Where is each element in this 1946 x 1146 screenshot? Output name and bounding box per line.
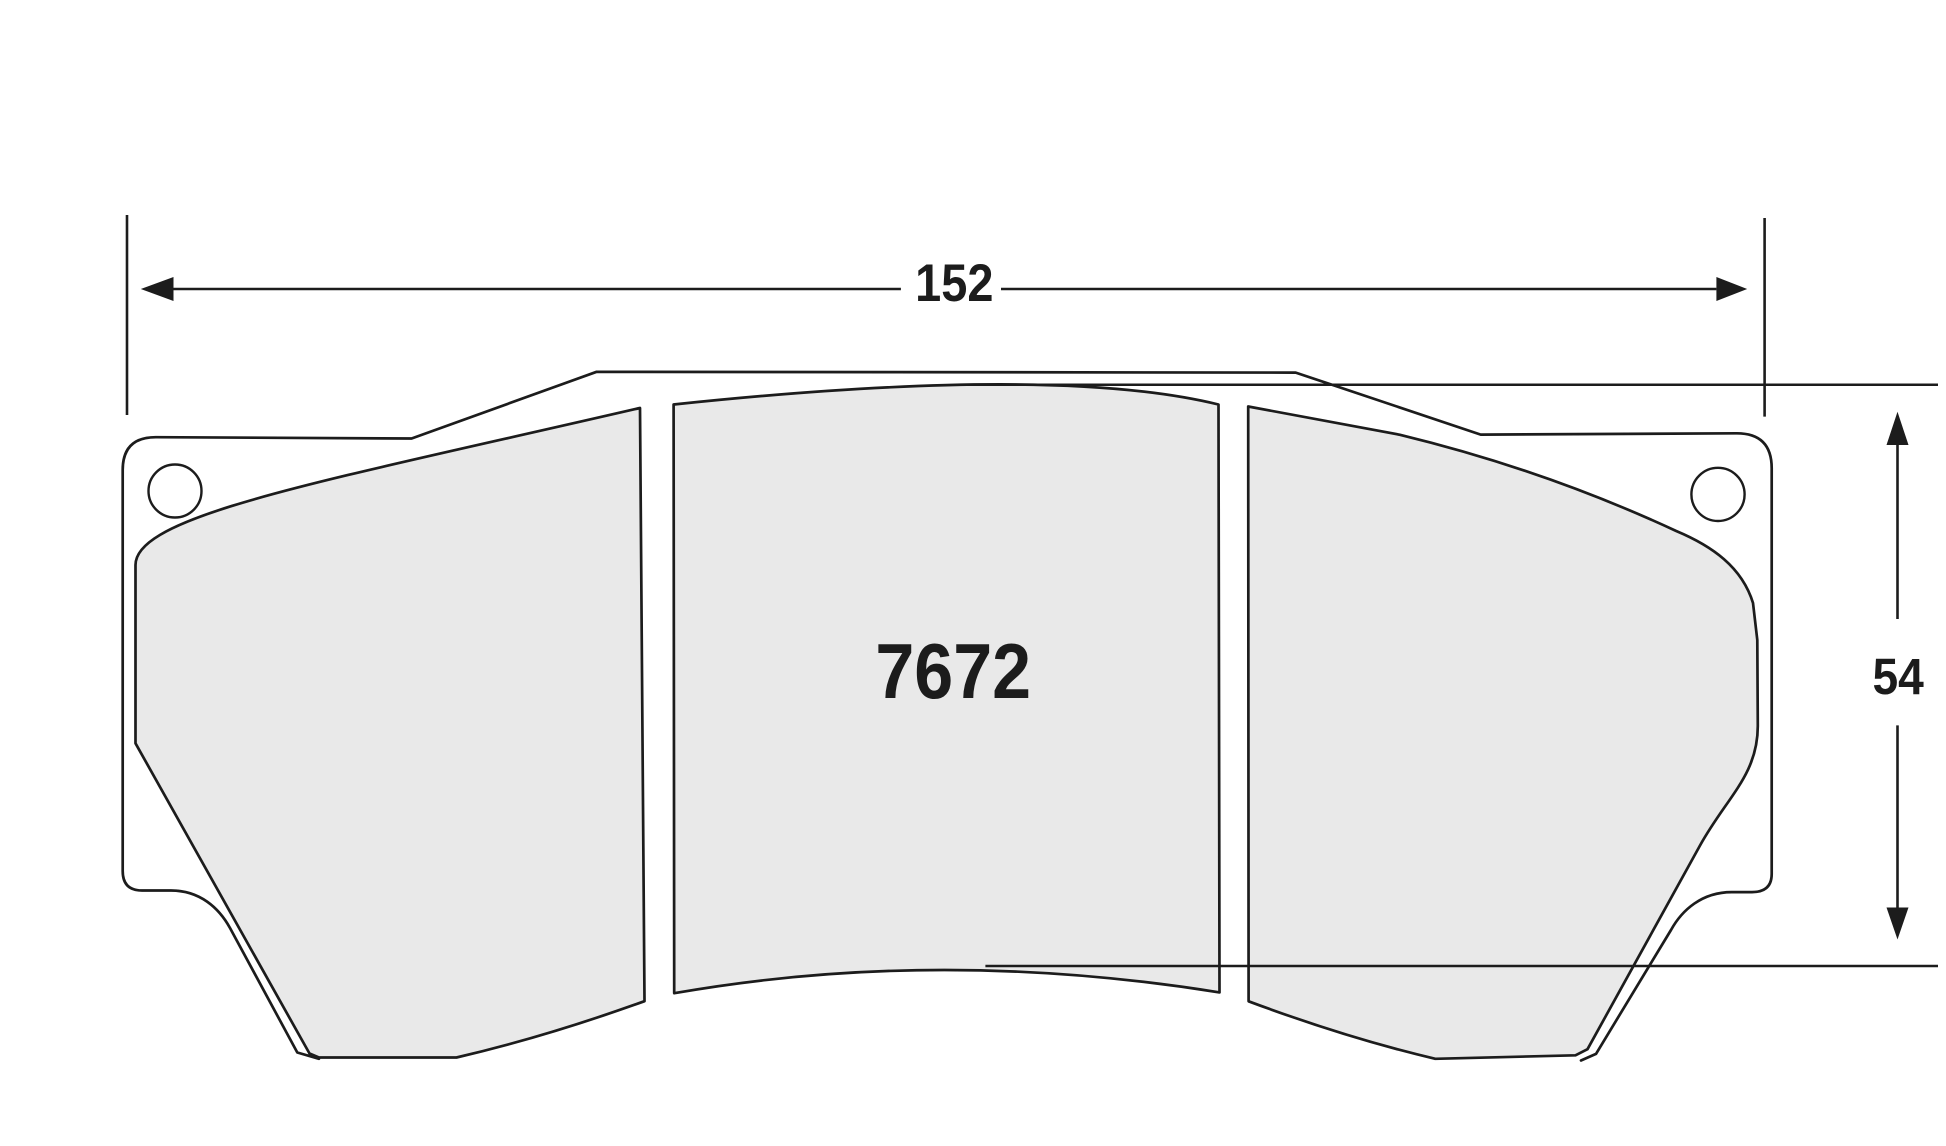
svg-text:152: 152 xyxy=(915,253,993,312)
svg-text:54: 54 xyxy=(1872,649,1923,705)
svg-text:7672: 7672 xyxy=(875,628,1031,716)
